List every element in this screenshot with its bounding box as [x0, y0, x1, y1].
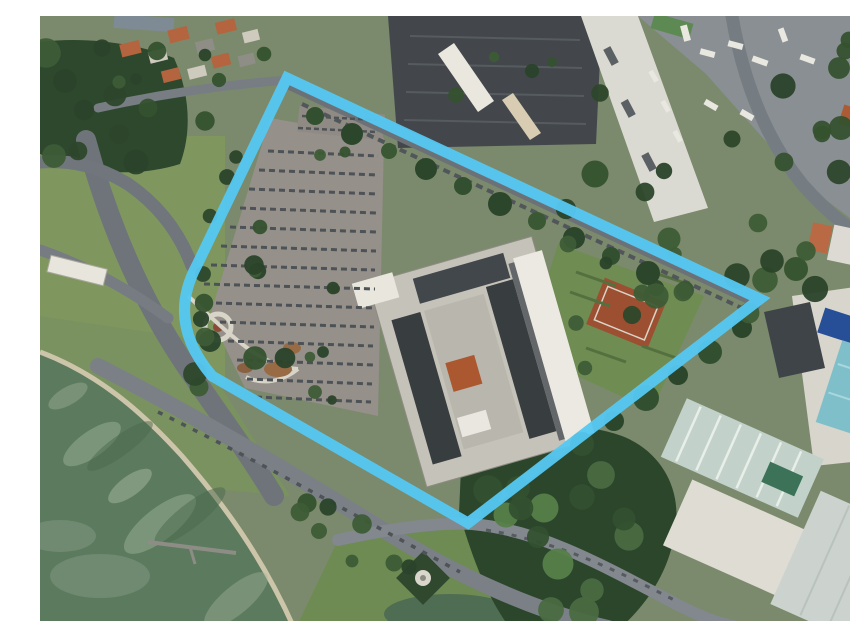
street-tree — [454, 177, 472, 195]
west-park-trees — [275, 348, 296, 369]
top-left-park-trees — [124, 150, 149, 175]
house-trees — [130, 73, 141, 84]
forest-canopy — [587, 461, 615, 489]
top-left-park-trees — [69, 142, 88, 161]
street-tree — [341, 123, 363, 145]
left-edge-trees — [253, 220, 268, 235]
forest-canopy — [580, 578, 603, 601]
depot-edge-trees — [489, 52, 499, 62]
forest-canopy — [530, 494, 559, 523]
house-trees — [257, 47, 272, 62]
house-trees — [212, 73, 226, 87]
shore-trees — [352, 514, 372, 534]
inner-ne-trees — [643, 283, 668, 308]
street-tree — [415, 158, 437, 180]
left-edge-trees — [195, 111, 214, 130]
parking-trees — [314, 149, 326, 161]
right-mid-trees — [796, 241, 815, 260]
right-mid-trees — [749, 214, 768, 233]
parking-trees — [317, 346, 329, 358]
lawn-trees — [401, 559, 416, 574]
garden-trees — [568, 315, 583, 330]
west-park-trees — [243, 346, 267, 370]
lawn-trees — [346, 555, 359, 568]
garden-trees — [623, 306, 641, 324]
depot-edge-trees — [591, 84, 609, 102]
house-trees — [112, 75, 125, 88]
top-left-park-trees — [109, 124, 129, 144]
monument-statue — [420, 575, 426, 581]
top-right-trees — [770, 73, 795, 98]
top-left-park-trees — [93, 39, 110, 56]
forest-canopy — [569, 484, 594, 509]
shore-trees — [319, 498, 336, 515]
water-glint — [50, 554, 150, 598]
bottom-white-margin — [40, 621, 850, 628]
garden-trees — [600, 257, 613, 270]
right-mid-trees — [784, 257, 808, 281]
parking-trees — [330, 284, 340, 294]
shore-trees — [291, 503, 310, 522]
west-park-trees — [193, 311, 209, 327]
inner-ne-trees — [636, 183, 655, 202]
top-right-trees — [813, 121, 832, 140]
forest-canopy — [527, 526, 549, 548]
street-tree — [488, 192, 512, 216]
inner-ne-trees — [656, 163, 672, 179]
house-trees — [199, 49, 212, 62]
right-mid-trees — [802, 276, 828, 302]
top-left-park-trees — [148, 42, 166, 60]
satellite-map-image — [40, 16, 850, 628]
left-edge-trees — [244, 255, 264, 275]
depot-edge-trees — [525, 64, 539, 78]
top-left-park-trees — [74, 100, 94, 120]
shore-trees — [311, 523, 327, 539]
west-park-trees — [196, 328, 215, 347]
top-left-park-trees — [139, 99, 158, 118]
street-tree — [306, 107, 324, 125]
forest-canopy — [613, 508, 636, 531]
parking-trees — [327, 395, 337, 405]
parking-trees — [305, 352, 316, 363]
garden-trees — [674, 283, 693, 302]
top-left-park-trees — [53, 69, 77, 93]
forest-canopy — [543, 549, 574, 580]
forest-canopy — [509, 496, 534, 521]
top-right-trees — [828, 57, 850, 79]
inner-ne-trees — [560, 236, 577, 253]
parking-trees — [308, 385, 322, 399]
top-right-trees — [775, 153, 794, 172]
lawn-trees — [386, 555, 403, 572]
top-right-trees — [724, 131, 741, 148]
top-left-park-trees — [42, 144, 66, 168]
frame — [40, 621, 850, 628]
garden-trees — [578, 361, 592, 375]
parking-trees — [340, 147, 351, 158]
depot-edge-trees — [448, 87, 464, 103]
west-park-trees — [195, 294, 213, 312]
right-mid-trees — [760, 249, 784, 273]
forest-canopy — [538, 597, 564, 623]
aerial-map-screenshot — [40, 16, 850, 628]
depot-edge-trees — [547, 57, 557, 67]
street-tree — [381, 143, 397, 159]
inner-ne-trees — [582, 161, 609, 188]
street-tree — [528, 212, 546, 230]
